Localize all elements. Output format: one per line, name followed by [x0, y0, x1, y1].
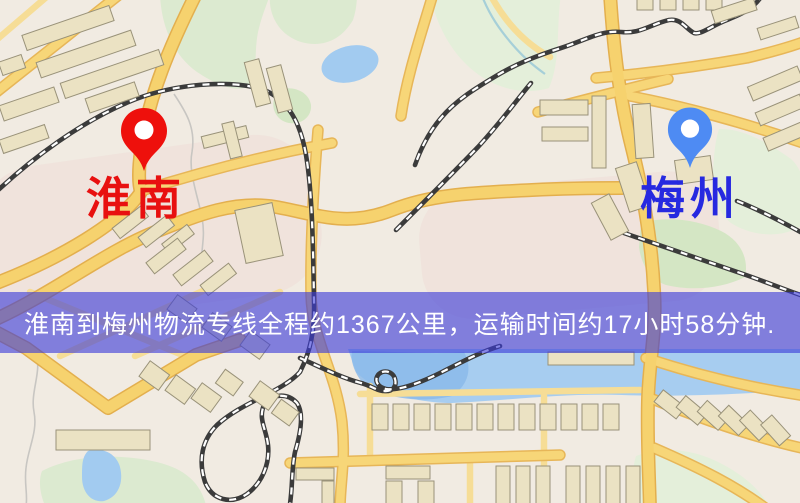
route-info-text: 淮南到梅州物流专线全程约1367公里，运输时间约17小时58分钟. [24, 305, 775, 341]
map-background [0, 0, 800, 503]
map-stage: 淮南 梅州 淮南到梅州物流专线全程约1367公里，运输时间约17小时58分钟. [0, 0, 800, 503]
route-info-banner: 淮南到梅州物流专线全程约1367公里，运输时间约17小时58分钟. [0, 292, 800, 353]
destination-city-label: 梅州 [640, 176, 740, 221]
origin-city-label: 淮南 [86, 176, 186, 221]
